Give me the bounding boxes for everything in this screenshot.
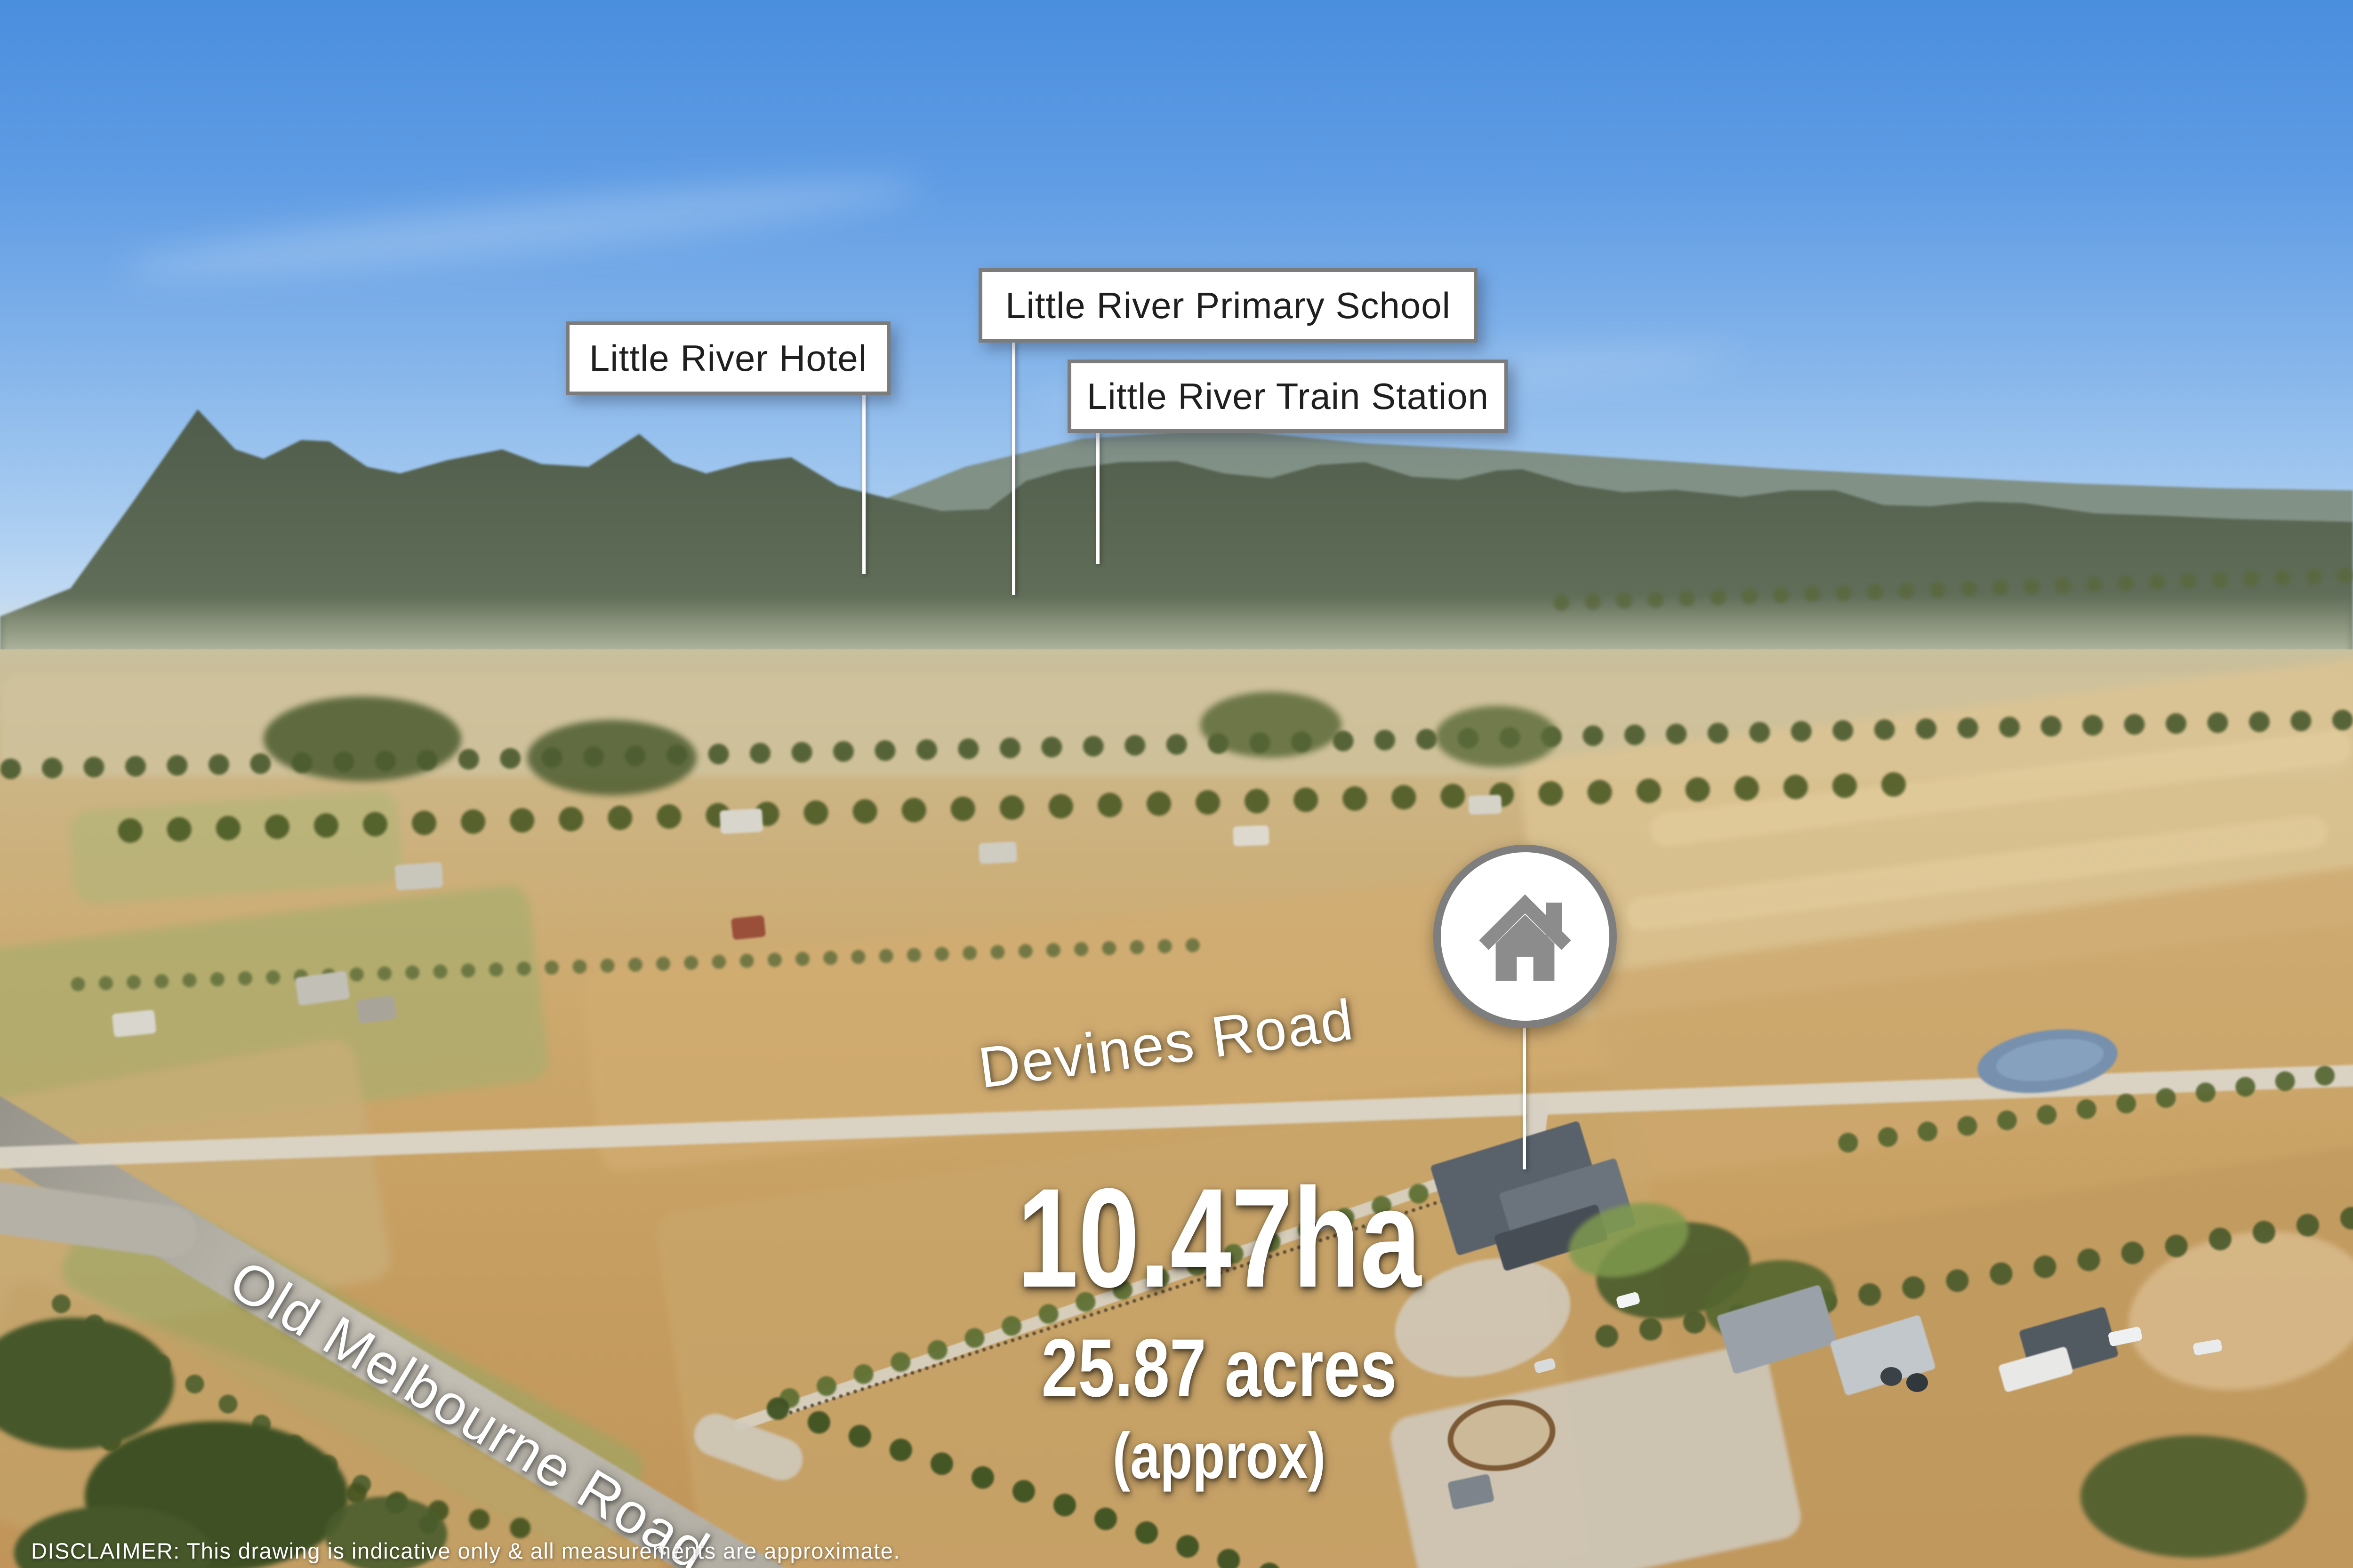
leader-line-hotel xyxy=(862,394,866,574)
label-little-river-train-station: Little River Train Station xyxy=(1068,360,1508,433)
scenery-shape xyxy=(1880,1367,1902,1386)
label-text: Little River Train Station xyxy=(1087,375,1489,418)
scenery-shape xyxy=(731,915,766,940)
scenery-shape xyxy=(1436,706,1558,767)
label-text: Little River Primary School xyxy=(1005,284,1451,327)
scenery-shape xyxy=(264,696,461,781)
scenery-shape xyxy=(1200,692,1341,758)
leader-line-primary-school xyxy=(1012,342,1015,595)
label-little-river-hotel: Little River Hotel xyxy=(566,321,891,395)
property-area: 10.47ha 25.87 acres (approx) xyxy=(890,1167,1549,1488)
property-aerial-map: Little River Hotel Little River Primary … xyxy=(0,0,2353,1568)
label-little-river-primary-school: Little River Primary School xyxy=(979,268,1478,343)
scenery-shape xyxy=(394,862,443,891)
house-marker xyxy=(1433,845,1617,1028)
scenery-shape xyxy=(527,720,697,795)
leader-line-house-marker xyxy=(1523,1019,1526,1169)
scenery-shape xyxy=(1233,825,1269,847)
label-text: Little River Hotel xyxy=(589,337,867,380)
house-icon xyxy=(1469,880,1582,993)
scenery-shape xyxy=(979,841,1017,864)
area-approx: (approx) xyxy=(949,1424,1489,1488)
area-acres: 25.87 acres xyxy=(956,1327,1483,1409)
leader-line-train-station xyxy=(1096,431,1100,564)
scenery-shape xyxy=(1468,795,1502,815)
scenery-shape xyxy=(112,1009,157,1037)
area-hectares: 10.47ha xyxy=(962,1167,1476,1308)
scenery-shape xyxy=(720,808,763,834)
scenery-shape xyxy=(2080,1435,2306,1558)
disclaimer-text: DISCLAIMER: This drawing is indicative o… xyxy=(31,1538,900,1564)
scenery-shape xyxy=(1906,1373,1928,1392)
